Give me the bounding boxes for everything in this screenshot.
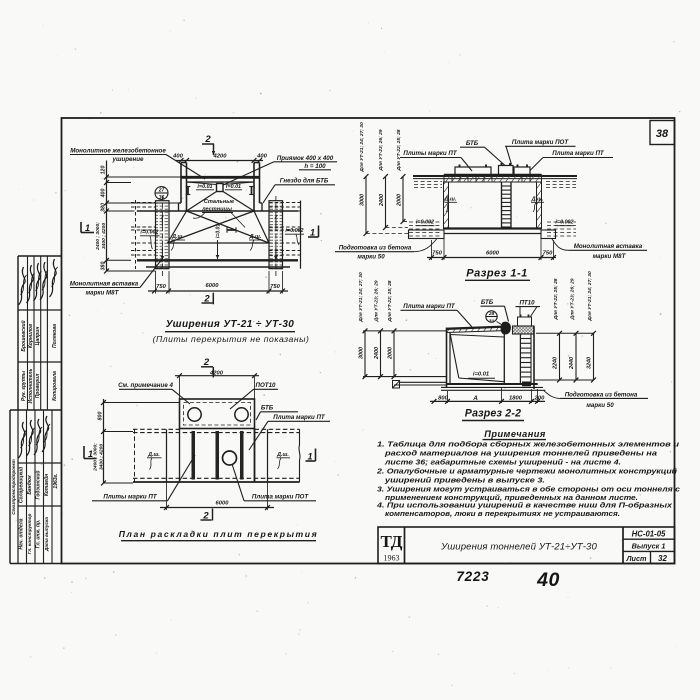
- svg-text:Д.ш.: Д.ш.: [171, 234, 184, 240]
- svg-text:6000: 6000: [486, 251, 500, 257]
- svg-text:ТД: ТД: [381, 532, 403, 551]
- svg-text:Подготовка из бетона: Подготовка из бетона: [565, 391, 638, 398]
- svg-text:Для УТ-21; 24; 27; 30: Для УТ-21; 24; 27; 30: [359, 122, 365, 173]
- svg-text:Брошевский: Брошевский: [20, 320, 27, 351]
- svg-text:См. примечание 4: См. примечание 4: [118, 382, 173, 389]
- svg-text:27: 27: [158, 188, 165, 194]
- svg-text:Стальные: Стальные: [204, 199, 234, 205]
- svg-text:750: 750: [156, 284, 166, 290]
- svg-text:3400 ; 4200: 3400 ; 4200: [101, 223, 107, 249]
- svg-text:Д.ш.: Д.ш.: [147, 452, 160, 458]
- svg-text:Для УТ-23; 26; 29: Для УТ-23; 26; 29: [374, 280, 380, 322]
- svg-text:Монолитная вставка: Монолитная вставка: [70, 281, 139, 288]
- svg-text:Плиты марки ПТ: Плиты марки ПТ: [103, 494, 157, 501]
- svg-text:Уширения тоннелей УТ-21÷УТ-3: Уширения тоннелей УТ-21÷УТ-30: [440, 542, 597, 553]
- svg-text:7223: 7223: [456, 569, 489, 584]
- svg-text:расход материалов на уширен: расход материалов на уширения тоннелей п…: [384, 448, 657, 457]
- svg-text:Годзинский: Годзинский: [35, 471, 42, 500]
- svg-text:Плита марки ПТ: Плита марки ПТ: [273, 414, 326, 421]
- svg-text:Выпуск 1: Выпуск 1: [632, 542, 666, 551]
- svg-text:3000: 3000: [359, 347, 365, 359]
- svg-text:Разрез 2-2: Разрез 2-2: [465, 408, 521, 420]
- svg-text:компенсаторов, люки в перек: компенсаторов, люки в перекрытиях не уст…: [385, 509, 620, 518]
- svg-text:Для УТ-23; 26; 29: Для УТ-23; 26; 29: [570, 278, 576, 320]
- svg-text:2400: 2400: [379, 194, 385, 207]
- svg-text:Для УТ-21; 24; 27; 30: Для УТ-21; 24; 27; 30: [358, 272, 364, 323]
- svg-text:31: 31: [489, 318, 495, 324]
- svg-text:Плиты марки ПТ: Плиты марки ПТ: [403, 150, 457, 157]
- svg-text:Для УТ-21; 24; 27; 30: Для УТ-21; 24; 27; 30: [587, 271, 593, 322]
- svg-text:1963: 1963: [384, 554, 400, 563]
- svg-text:h = 100: h = 100: [304, 163, 326, 170]
- svg-text:800: 800: [98, 412, 104, 421]
- svg-text:3400 ; 4200: 3400 ; 4200: [99, 444, 105, 470]
- svg-text:2240: 2240: [553, 357, 559, 370]
- svg-text:32: 32: [658, 554, 667, 563]
- svg-text:400: 400: [256, 154, 267, 160]
- svg-text:2000: 2000: [388, 347, 394, 360]
- svg-text:1: 1: [85, 223, 90, 233]
- svg-text:Примечания: Примечания: [484, 429, 546, 439]
- svg-text:6000: 6000: [206, 283, 220, 289]
- svg-text:2400 ; 3000;: 2400 ; 3000;: [95, 222, 101, 251]
- svg-text:28: 28: [488, 311, 495, 317]
- svg-text:План раскладки плит перекры: План раскладки плит перекрытия: [119, 529, 319, 539]
- svg-text:2400 ; 3000;: 2400 ; 3000;: [93, 443, 99, 472]
- svg-text:2440: 2440: [569, 357, 575, 370]
- svg-text:800: 800: [438, 396, 448, 402]
- svg-text:Копировала: Копировала: [52, 371, 58, 401]
- svg-text:380: 380: [101, 262, 107, 271]
- svg-text:Уширения УТ-21 ÷ УТ-30: Уширения УТ-21 ÷ УТ-30: [166, 319, 295, 330]
- svg-text:ПОТ10: ПОТ10: [256, 382, 276, 389]
- svg-text:НС-01-05: НС-01-05: [632, 530, 666, 539]
- svg-text:Цаприн: Цаприн: [35, 327, 41, 346]
- svg-text:Рук. группы: Рук. группы: [21, 370, 27, 401]
- svg-text:Для УТ-22; 25; 28: Для УТ-22; 25; 28: [553, 278, 559, 320]
- svg-text:Д.ш.: Д.ш.: [531, 197, 544, 203]
- svg-text:i=0.01: i=0.01: [216, 224, 222, 239]
- svg-text:Гнездо для БТБ: Гнездо для БТБ: [280, 178, 329, 185]
- svg-text:Для УТ-23; 26; 29: Для УТ-23; 26; 29: [378, 129, 384, 171]
- svg-text:А: А: [472, 395, 478, 402]
- svg-text:i=0.01: i=0.01: [226, 184, 241, 190]
- svg-text:БТБ: БТБ: [466, 140, 479, 147]
- svg-text:1800: 1800: [509, 396, 523, 402]
- svg-text:листе 36; габаритные схемы: листе 36; габаритные схемы уширений - на…: [384, 458, 621, 467]
- svg-text:120: 120: [101, 166, 107, 175]
- svg-text:Д.ш.: Д.ш.: [276, 452, 289, 458]
- svg-text:i=0.002: i=0.002: [140, 230, 158, 236]
- svg-text:Д.ш.: Д.ш.: [249, 234, 262, 240]
- svg-text:Гл. конструктор: Гл. конструктор: [27, 514, 32, 555]
- svg-text:4200: 4200: [209, 370, 224, 376]
- svg-text:ПТ10: ПТ10: [519, 299, 535, 306]
- svg-text:750: 750: [432, 251, 442, 257]
- svg-text:Союзпромстройпроект: Союзпромстройпроект: [10, 459, 16, 515]
- svg-text:Бандюк: Бандюк: [27, 475, 33, 495]
- svg-text:Плита марки ПТ: Плита марки ПТ: [552, 150, 605, 157]
- svg-text:Приямок 400 х 400: Приямок 400 х 400: [277, 155, 334, 162]
- svg-text:40: 40: [536, 569, 560, 591]
- svg-text:БТБ: БТБ: [261, 405, 274, 412]
- svg-text:Разрез 1-1: Разрез 1-1: [466, 268, 527, 280]
- svg-text:750: 750: [270, 284, 280, 290]
- svg-text:400: 400: [172, 154, 183, 160]
- svg-text:Исполнитель: Исполнитель: [28, 368, 34, 403]
- svg-text:1: 1: [307, 452, 312, 462]
- svg-text:2000: 2000: [397, 194, 403, 207]
- svg-text:3000: 3000: [360, 194, 366, 206]
- svg-text:Полякова: Полякова: [52, 324, 58, 348]
- svg-text:i=0.002: i=0.002: [416, 220, 434, 226]
- svg-text:Монолитное железобетонное: Монолитное железобетонное: [70, 148, 166, 155]
- svg-text:i=0.01: i=0.01: [473, 372, 489, 378]
- svg-text:1. Таблица для подбора сбор: 1. Таблица для подбора сборных железобет…: [377, 439, 680, 448]
- svg-text:Дата выпуска: Дата выпуска: [44, 517, 49, 552]
- svg-text:1963г.: 1963г.: [53, 473, 59, 488]
- svg-text:Нач. отдела: Нач. отдела: [19, 518, 25, 549]
- svg-text:Копшейн: Копшейн: [43, 474, 50, 496]
- svg-text:БТБ: БТБ: [481, 299, 494, 306]
- svg-text:38: 38: [656, 128, 669, 140]
- svg-text:марки М8Т: марки М8Т: [86, 290, 120, 297]
- svg-text:Плита марки ПОТ: Плита марки ПОТ: [512, 139, 569, 146]
- svg-text:марки М8Т: марки М8Т: [593, 253, 627, 260]
- svg-text:уширений приведены в выпуск: уширений приведены в выпуске 3.: [384, 475, 545, 484]
- svg-text:Лист: Лист: [625, 554, 647, 563]
- svg-text:марки 50: марки 50: [357, 254, 385, 261]
- svg-text:Подготовка из бетона: Подготовка из бетона: [339, 245, 412, 252]
- svg-text:Плита марки ПОТ: Плита марки ПОТ: [252, 494, 309, 501]
- svg-text:400: 400: [101, 189, 107, 199]
- svg-text:Монолитная вставка: Монолитная вставка: [574, 243, 643, 250]
- svg-text:i=0.01: i=0.01: [197, 184, 212, 190]
- svg-text:380: 380: [101, 203, 107, 212]
- svg-text:Плита марки ПТ: Плита марки ПТ: [403, 303, 456, 310]
- svg-text:200: 200: [534, 396, 545, 402]
- svg-text:750: 750: [543, 251, 553, 257]
- svg-text:(Плиты перекрытия не показа: (Плиты перекрытия не показаны): [153, 334, 310, 344]
- svg-text:2. Опалубочные и арматурные: 2. Опалубочные и арматурные чертежи моно…: [376, 466, 678, 475]
- svg-text:3240: 3240: [587, 357, 593, 369]
- svg-text:Для УТ-22; 25; 28: Для УТ-22; 25; 28: [387, 280, 393, 322]
- svg-text:2400: 2400: [374, 347, 380, 360]
- svg-text:4200: 4200: [213, 154, 228, 160]
- svg-text:Для УТ-22; 25; 28: Для УТ-22; 25; 28: [396, 129, 402, 171]
- svg-text:6000: 6000: [216, 501, 230, 507]
- svg-text:марки 50: марки 50: [586, 402, 614, 409]
- svg-text:36: 36: [159, 195, 165, 201]
- svg-text:i=0.002: i=0.002: [555, 220, 573, 226]
- svg-text:1: 1: [310, 228, 315, 238]
- svg-text:Корнилов: Корнилов: [28, 324, 34, 348]
- svg-text:Гл. инж. пр.: Гл. инж. пр.: [36, 520, 42, 549]
- svg-text:Соларевицкий: Соларевицкий: [18, 467, 25, 503]
- svg-text:уширение: уширение: [112, 156, 144, 163]
- svg-text:Проверил: Проверил: [35, 373, 41, 398]
- svg-text:i=0.002: i=0.002: [285, 228, 303, 234]
- svg-text:1: 1: [88, 449, 93, 459]
- svg-text:Д.ш.: Д.ш.: [444, 197, 457, 203]
